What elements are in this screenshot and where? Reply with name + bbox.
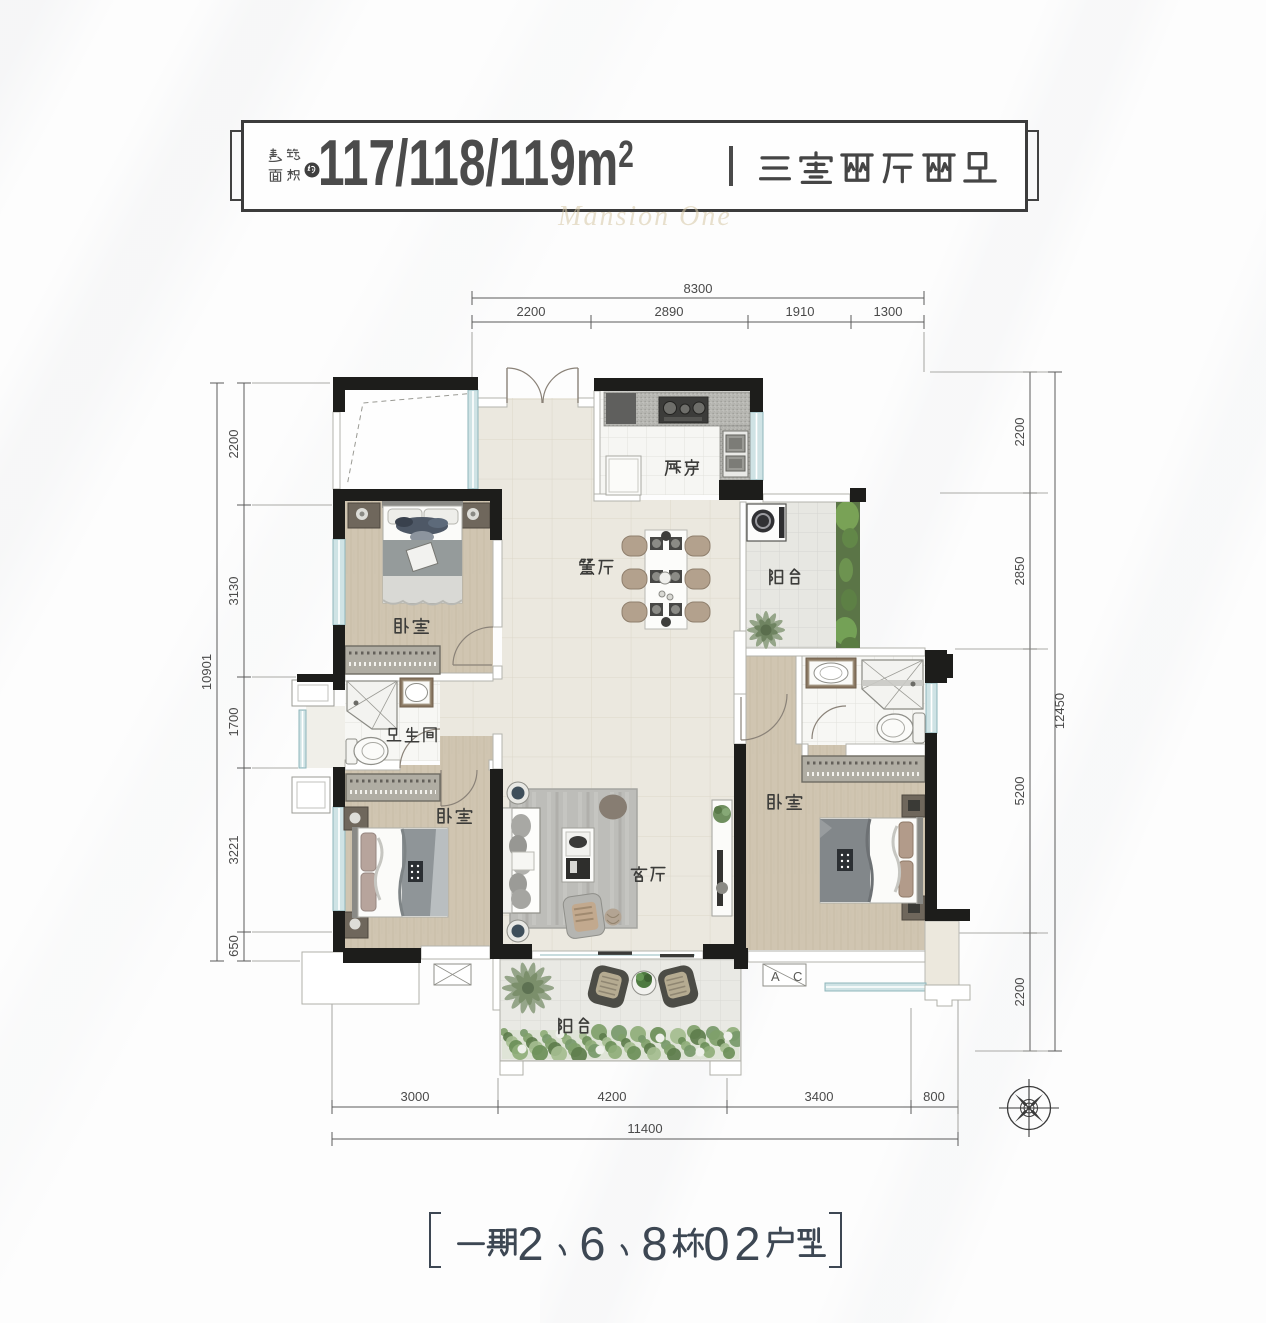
svg-text:6: 6	[579, 1217, 605, 1270]
svg-text:2: 2	[517, 1217, 543, 1270]
svg-text:2: 2	[734, 1217, 760, 1270]
svg-text:8: 8	[641, 1217, 667, 1270]
svg-text:0: 0	[703, 1217, 729, 1270]
